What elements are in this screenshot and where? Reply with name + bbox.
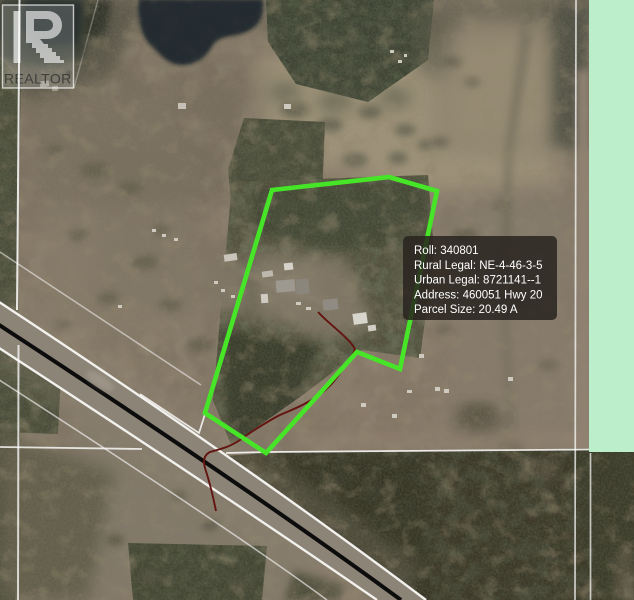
svg-text:REALTOR: REALTOR xyxy=(4,71,72,87)
svg-text:Address: 460051 Hwy 20: Address: 460051 Hwy 20 xyxy=(414,289,543,301)
svg-text:®: ® xyxy=(66,69,72,78)
svg-text:Rural Legal: NE-4-46-3-5: Rural Legal: NE-4-46-3-5 xyxy=(414,260,542,272)
svg-text:Urban Legal: 8721141--1: Urban Legal: 8721141--1 xyxy=(414,275,541,287)
svg-text:Parcel Size: 20.49 A: Parcel Size: 20.49 A xyxy=(414,304,518,316)
svg-text:Roll: 340801: Roll: 340801 xyxy=(414,245,479,257)
